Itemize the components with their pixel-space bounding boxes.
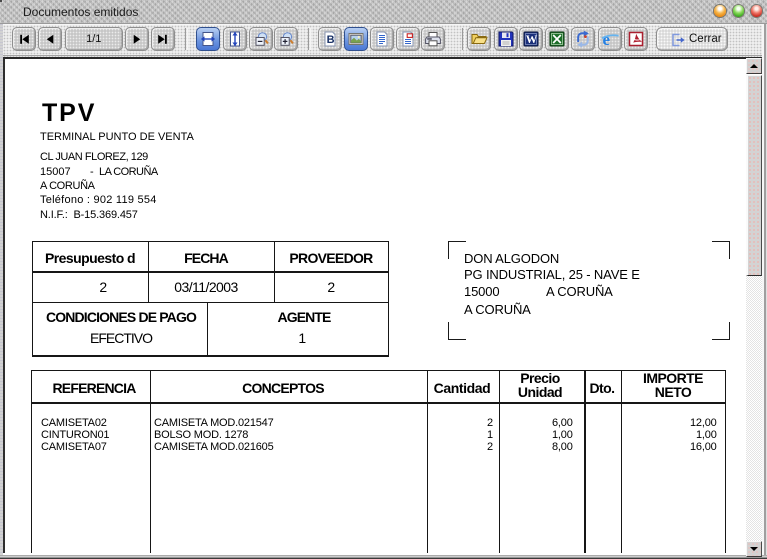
svg-text:B: B [327,34,335,46]
svg-text:W: W [526,34,538,46]
svg-text:e: e [603,30,611,49]
